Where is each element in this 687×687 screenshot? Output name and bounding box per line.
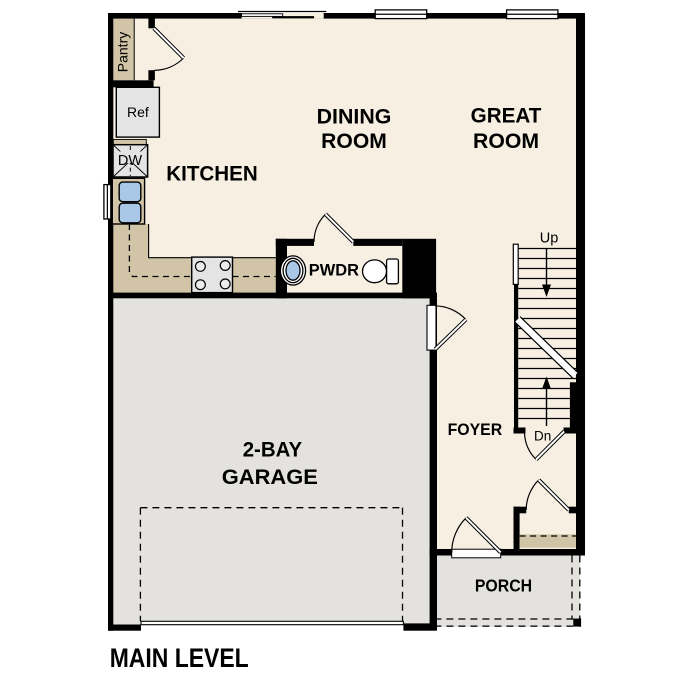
svg-text:GARAGE: GARAGE — [222, 465, 318, 489]
svg-text:PWDR: PWDR — [309, 261, 359, 280]
svg-text:MAIN LEVEL: MAIN LEVEL — [110, 643, 249, 673]
svg-text:ROOM: ROOM — [321, 130, 387, 153]
svg-text:Pantry: Pantry — [115, 32, 131, 72]
svg-text:GREAT: GREAT — [471, 105, 542, 128]
svg-text:DINING: DINING — [317, 105, 392, 128]
svg-text:2-BAY: 2-BAY — [243, 438, 302, 462]
svg-text:Dn: Dn — [534, 428, 551, 443]
svg-text:PORCH: PORCH — [475, 576, 532, 596]
svg-text:KITCHEN: KITCHEN — [166, 162, 258, 185]
svg-text:Up: Up — [540, 230, 559, 246]
svg-text:DW: DW — [118, 153, 142, 169]
svg-text:ROOM: ROOM — [473, 130, 539, 153]
svg-text:Ref: Ref — [127, 104, 149, 120]
svg-text:FOYER: FOYER — [448, 420, 503, 439]
